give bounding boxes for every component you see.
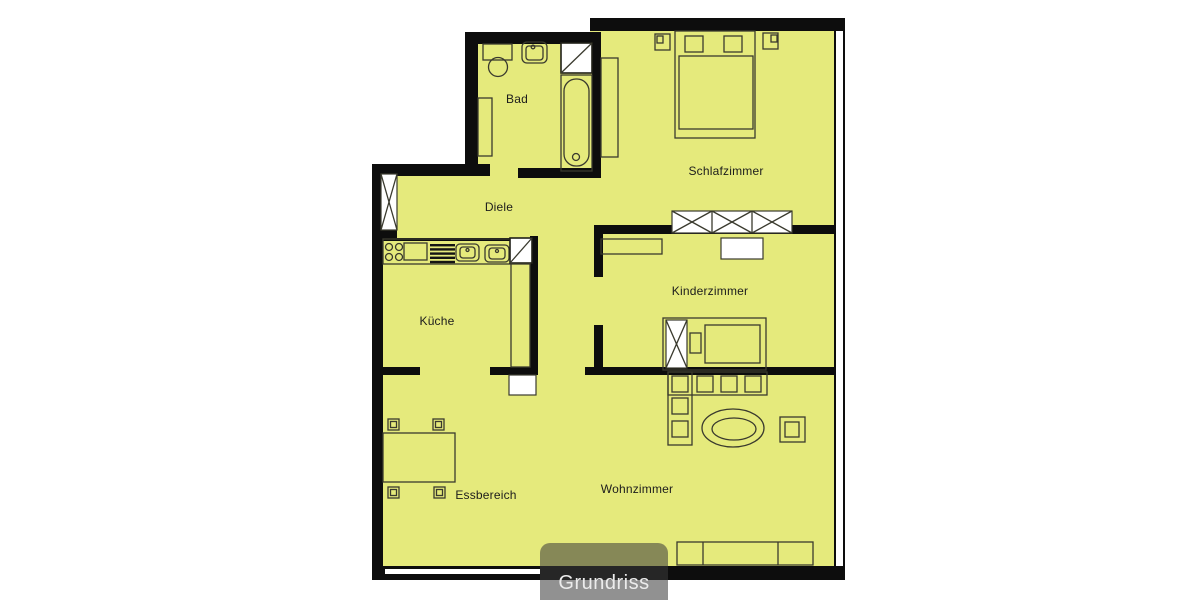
cabinet-icon	[721, 238, 763, 259]
wall-segment	[518, 168, 601, 178]
room-label-kinderzimmer: Kinderzimmer	[672, 284, 748, 298]
drainer-stripe	[430, 244, 455, 246]
wall-segment	[585, 367, 845, 375]
floorplan-drawing	[0, 0, 1200, 600]
wall-segment	[465, 32, 478, 164]
room-label-schlafzimmer: Schlafzimmer	[688, 164, 763, 178]
hallway-fixtures	[381, 174, 397, 230]
drainer-stripe	[430, 252, 455, 254]
wall-segment	[590, 18, 845, 31]
room-label-essbereich: Essbereich	[455, 488, 516, 502]
room-label-kueche: Küche	[419, 314, 454, 328]
room-label-wohnzimmer: Wohnzimmer	[601, 482, 673, 496]
grundriss-badge: Grundriss	[540, 543, 668, 600]
wall-segment	[594, 225, 603, 277]
window-right-outer-line	[843, 18, 845, 580]
drainer-stripe	[430, 248, 455, 250]
pass-through-box	[509, 375, 536, 395]
drainer-stripe	[430, 261, 455, 263]
wall-segment	[372, 367, 420, 375]
room-label-diele: Diele	[485, 200, 513, 214]
window-right-inner-line	[834, 31, 836, 566]
room-label-bad: Bad	[506, 92, 528, 106]
floorplan-canvas: Bad Diele Küche Schlafzimmer Kinderzimme…	[0, 0, 1200, 600]
grundriss-badge-text: Grundriss	[558, 572, 649, 600]
drainer-stripe	[430, 257, 455, 259]
wall-segment	[592, 32, 601, 178]
wall-segment	[490, 367, 537, 375]
window-right-glass	[836, 31, 843, 566]
window-bottom-glass	[385, 569, 540, 574]
